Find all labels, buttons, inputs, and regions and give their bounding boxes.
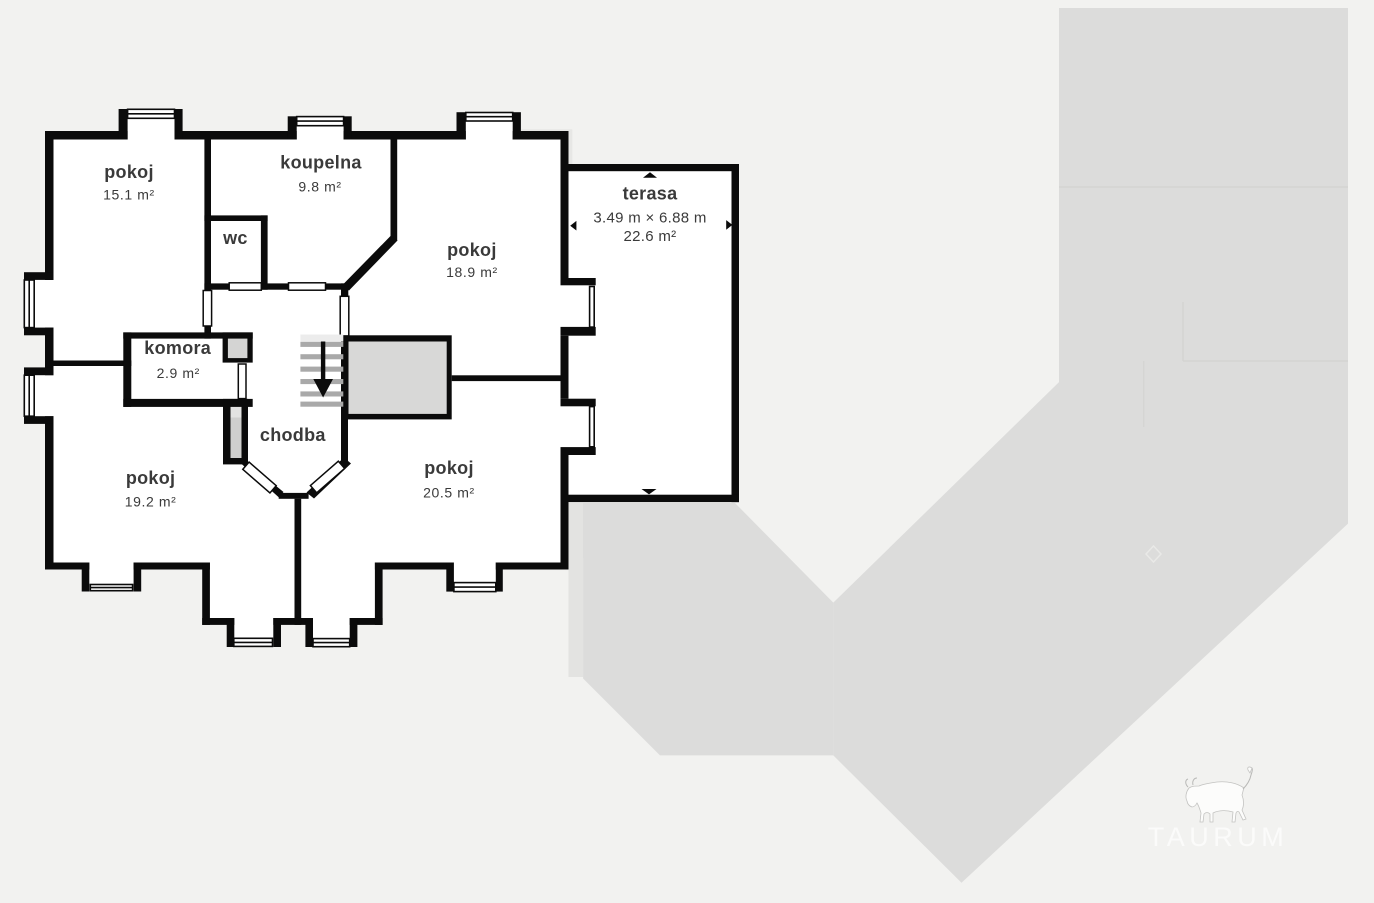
svg-text:TAURUM: TAURUM <box>1148 822 1288 852</box>
svg-text:koupelna: koupelna <box>280 153 362 173</box>
svg-text:pokoj: pokoj <box>104 162 154 182</box>
svg-text:9.8 m²: 9.8 m² <box>298 178 341 194</box>
svg-text:22.6 m²: 22.6 m² <box>624 228 677 245</box>
svg-text:19.2 m²: 19.2 m² <box>125 493 177 509</box>
svg-text:komora: komora <box>144 338 212 358</box>
svg-text:2.9 m²: 2.9 m² <box>157 365 200 381</box>
svg-text:20.5 m²: 20.5 m² <box>423 484 475 500</box>
svg-text:terasa: terasa <box>623 183 679 203</box>
svg-text:pokoj: pokoj <box>447 240 497 260</box>
svg-text:pokoj: pokoj <box>424 458 474 478</box>
svg-text:chodba: chodba <box>260 425 326 445</box>
svg-text:15.1 m²: 15.1 m² <box>103 187 155 203</box>
svg-text:3.49 m × 6.88 m: 3.49 m × 6.88 m <box>593 209 706 226</box>
svg-text:18.9 m²: 18.9 m² <box>446 264 498 280</box>
svg-text:wc: wc <box>222 228 248 248</box>
svg-text:pokoj: pokoj <box>126 468 176 488</box>
